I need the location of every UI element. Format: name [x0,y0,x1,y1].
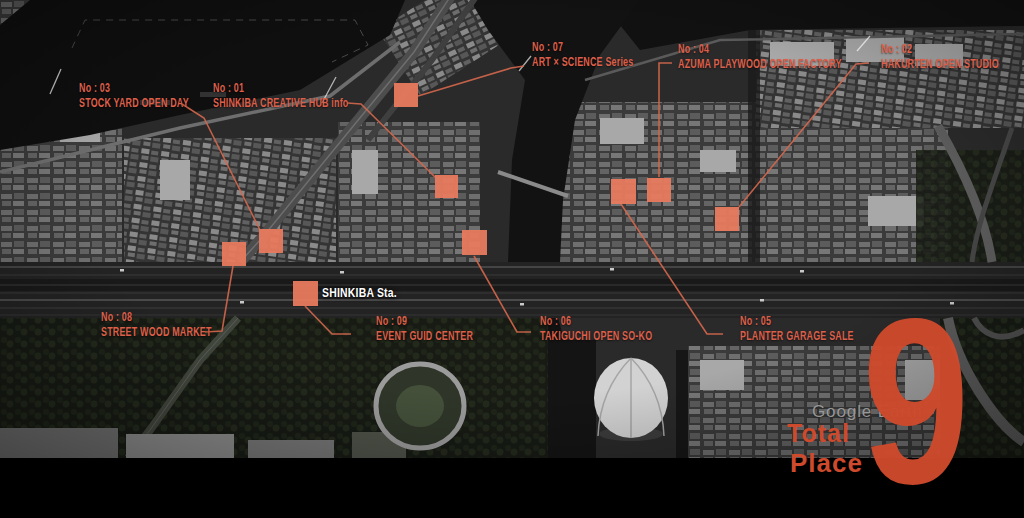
place-number-08: No : 08 [101,310,212,325]
place-name-06: TAKIGUCHI OPEN SO-KO [540,329,652,344]
place-marker-08[interactable] [222,242,246,266]
place-marker-02[interactable] [715,207,739,231]
place-label-03: No : 03STOCK YARD OPEN DAY [79,81,189,111]
place-label-08: No : 08STREET WOOD MARKET [101,310,212,340]
place-label-01: No : 01SHINKIBA CREATIVE HUB info [213,81,349,111]
place-marker-07[interactable] [394,83,418,107]
place-name-01: SHINKIBA CREATIVE HUB info [213,96,349,111]
place-number-03: No : 03 [79,81,189,96]
place-marker-06[interactable] [462,230,487,255]
place-marker-03[interactable] [259,229,283,253]
place-label-09: No : 09EVENT GUID CENTER [376,314,473,344]
place-number-04: No : 04 [678,42,842,57]
place-marker-04[interactable] [647,178,671,202]
shinkiba-event-map: No : 01SHINKIBA CREATIVE HUB infoNo : 02… [0,0,1024,518]
place-label-02: No : 02HAKURTEN OPEN STUDIO [881,42,999,72]
place-name-02: HAKURTEN OPEN STUDIO [881,57,999,72]
place-label-06: No : 06TAKIGUCHI OPEN SO-KO [540,314,652,344]
place-number-09: No : 09 [376,314,473,329]
total-count-numeral: 9 [862,283,970,518]
place-number-02: No : 02 [881,42,999,57]
place-label-05: No : 05PLANTER GARAGE SALE [740,314,854,344]
station-label: SHINKIBA Sta. [322,285,397,300]
place-number-07: No : 07 [532,40,633,55]
place-marker-09[interactable] [293,281,318,306]
place-number-05: No : 05 [740,314,854,329]
place-name-05: PLANTER GARAGE SALE [740,329,854,344]
place-name-07: ART × SCIENCE Series [532,55,633,70]
place-name-03: STOCK YARD OPEN DAY [79,96,189,111]
place-marker-01[interactable] [435,175,458,198]
place-label: Place [790,450,863,476]
place-label-07: No : 07ART × SCIENCE Series [532,40,633,70]
place-marker-05[interactable] [611,179,636,204]
place-number-01: No : 01 [213,81,349,96]
place-name-04: AZUMA PLAYWOOD OPEN FACTORY [678,57,842,72]
total-label: Total [787,421,850,446]
place-name-09: EVENT GUID CENTER [376,329,473,344]
place-label-04: No : 04AZUMA PLAYWOOD OPEN FACTORY [678,42,842,72]
place-number-06: No : 06 [540,314,652,329]
place-name-08: STREET WOOD MARKET [101,325,212,340]
